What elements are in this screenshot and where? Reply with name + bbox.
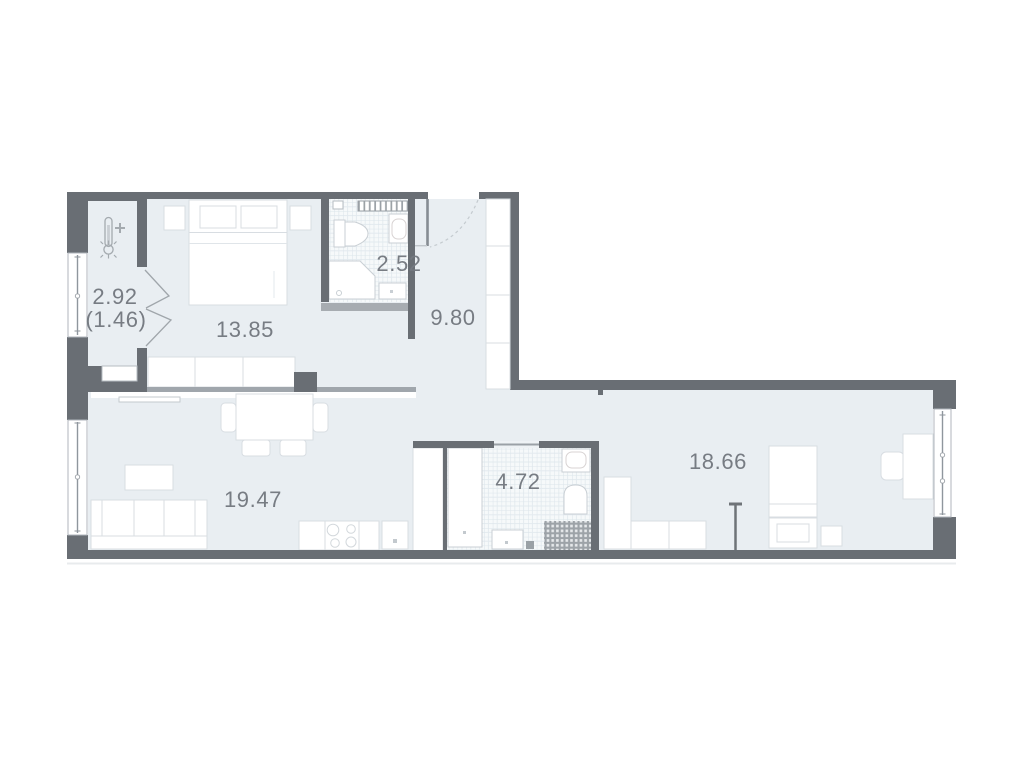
svg-text:2.92: 2.92	[92, 284, 137, 309]
svg-text:(1.46): (1.46)	[85, 307, 146, 332]
svg-text:19.47: 19.47	[224, 487, 282, 512]
svg-text:4.72: 4.72	[495, 469, 540, 494]
svg-text:13.85: 13.85	[216, 317, 274, 342]
svg-text:2.52: 2.52	[376, 251, 421, 276]
svg-text:18.66: 18.66	[689, 449, 747, 474]
svg-text:9.80: 9.80	[430, 305, 475, 330]
